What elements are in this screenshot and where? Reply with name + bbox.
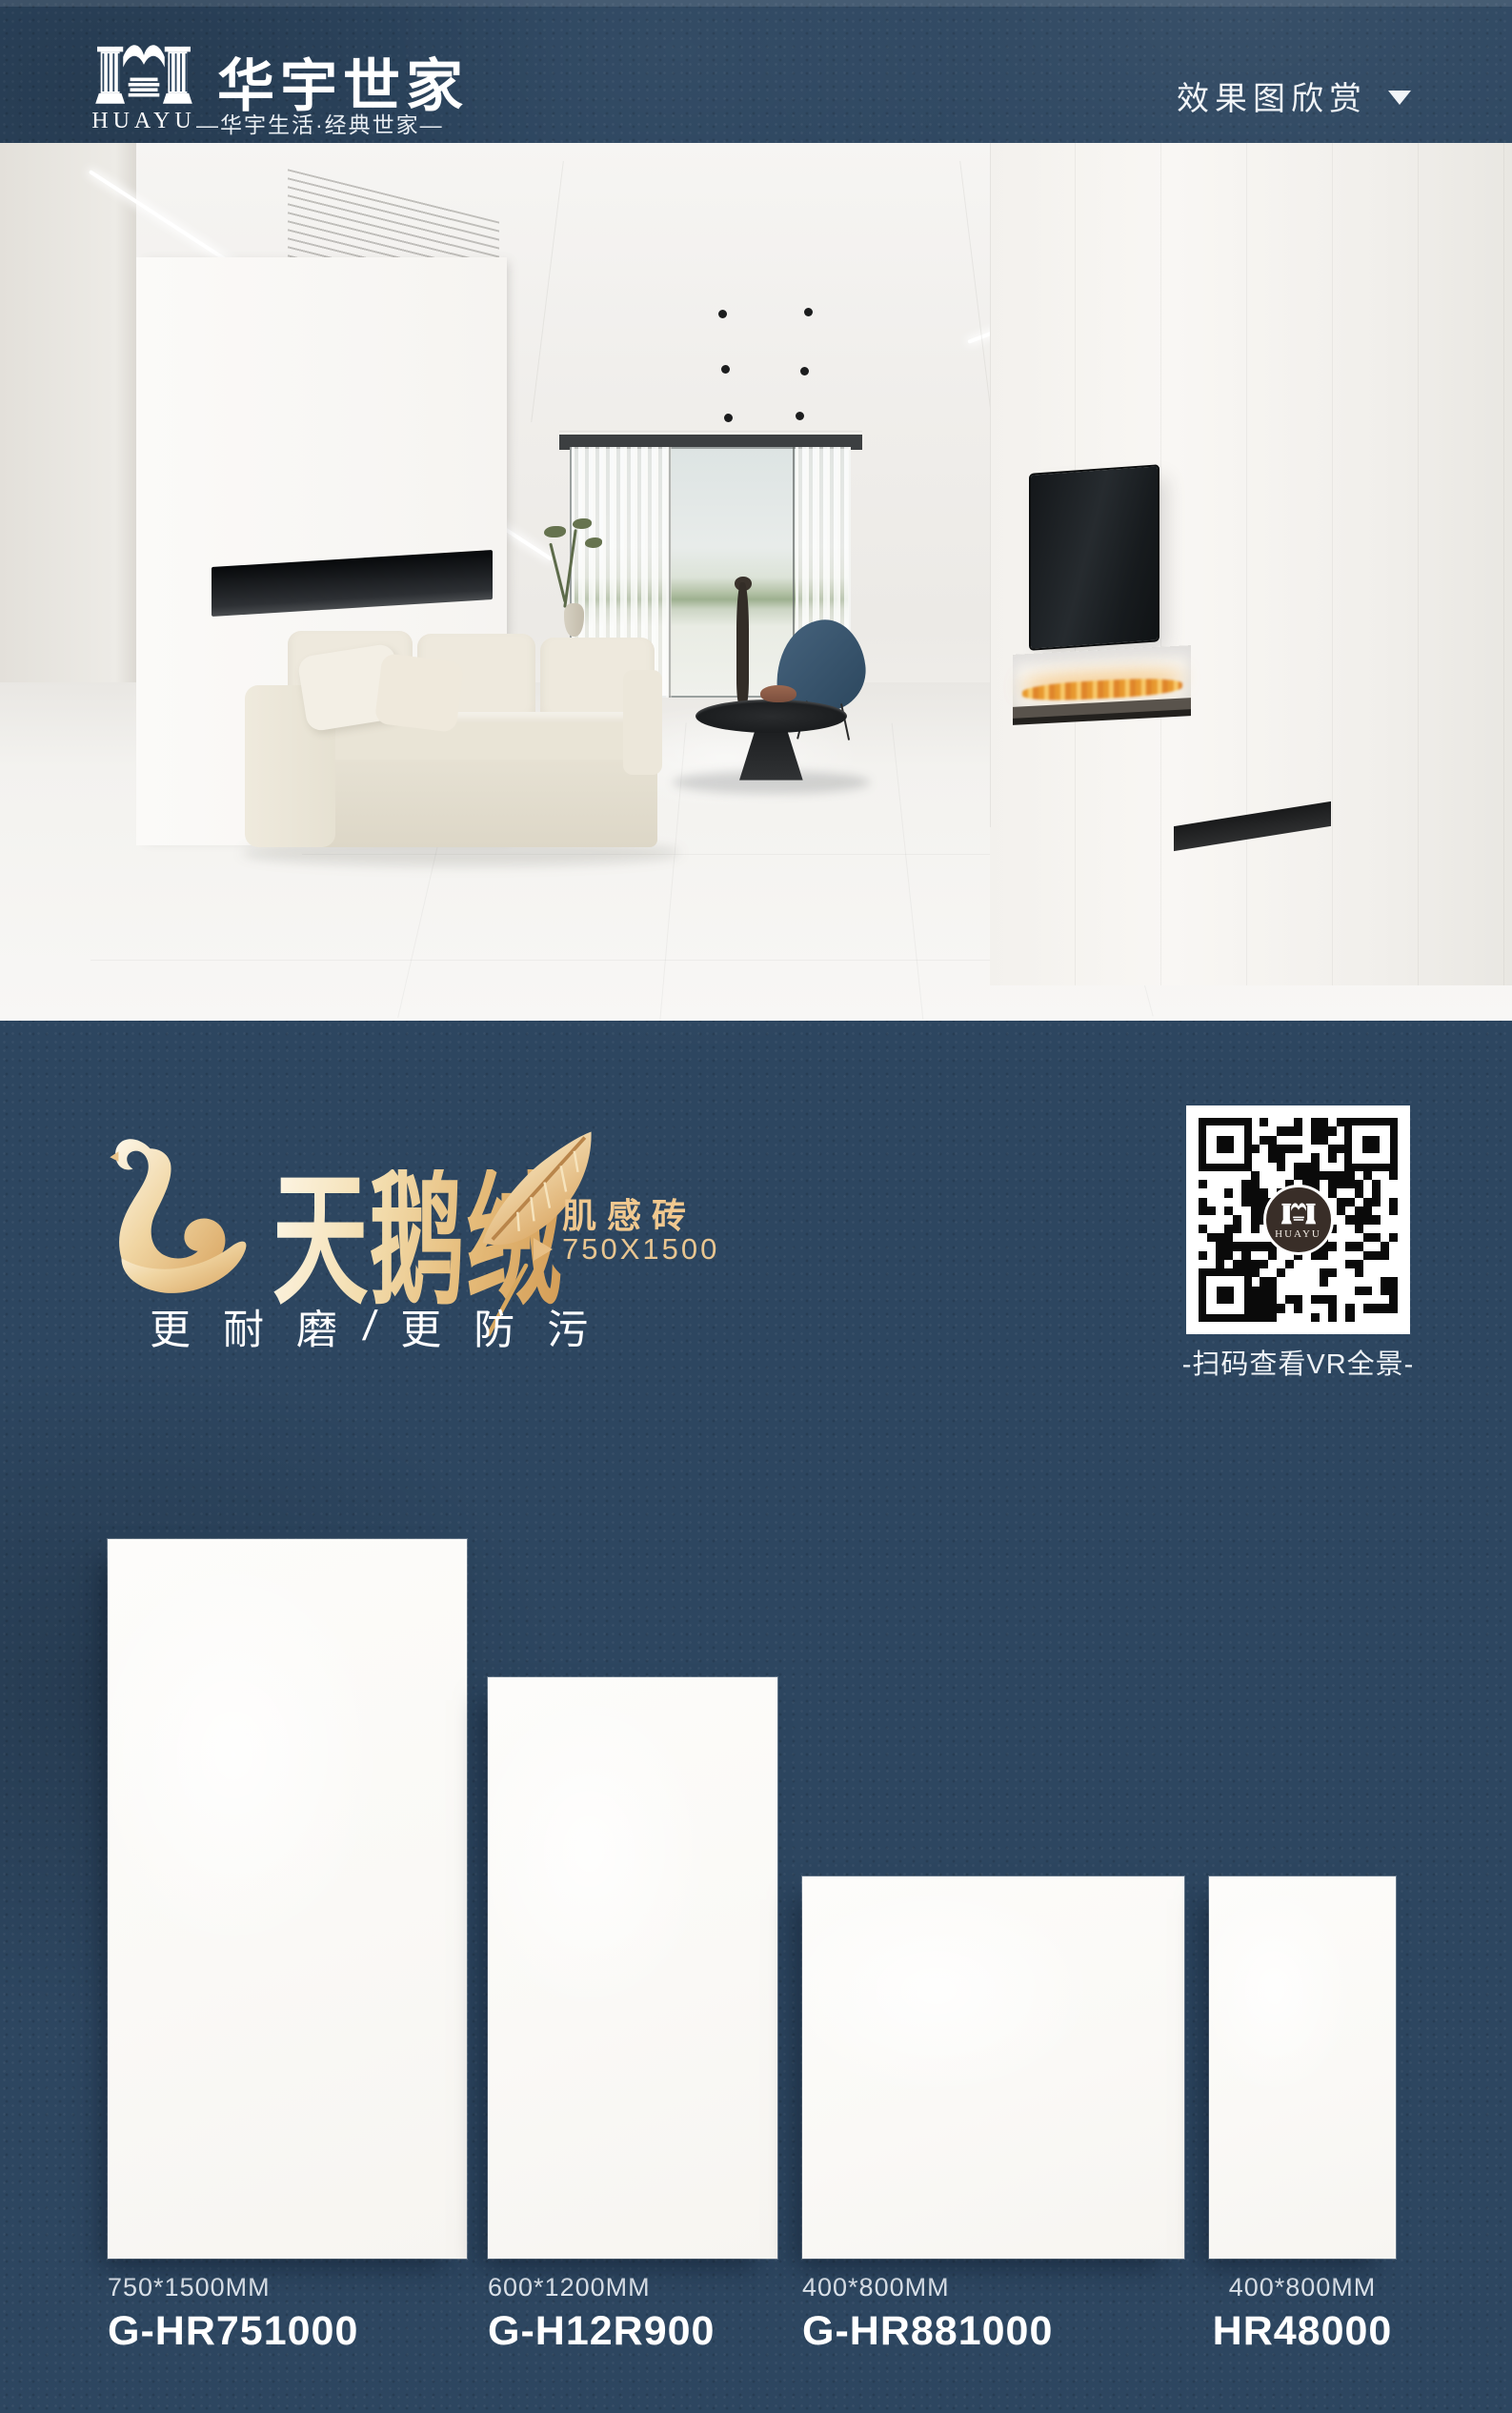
qr-cell — [1260, 1277, 1268, 1286]
plant-branch — [549, 543, 567, 603]
tile-swatch — [802, 1876, 1184, 2259]
qr-cell — [1294, 1277, 1302, 1286]
qr-cell — [1224, 1251, 1233, 1260]
size-tag-row: 750X1500 — [534, 1232, 719, 1267]
qr-cell — [1311, 1145, 1320, 1153]
qr-cell — [1355, 1180, 1363, 1188]
qr-cell — [1260, 1126, 1268, 1135]
qr-cell — [1320, 1260, 1328, 1268]
qr-cell — [1320, 1277, 1328, 1286]
qr-cell — [1363, 1180, 1372, 1188]
qr-finder — [1199, 1268, 1252, 1322]
qr-cell — [1337, 1277, 1345, 1286]
qr-cell — [1260, 1295, 1268, 1304]
qr-cell — [1328, 1295, 1337, 1304]
qr-cell — [1268, 1153, 1277, 1162]
qr-cell — [1285, 1163, 1294, 1171]
qr-cell — [1268, 1171, 1277, 1180]
qr-cell — [1311, 1153, 1320, 1162]
qr-cell — [1345, 1242, 1354, 1250]
qr-cell — [1260, 1118, 1268, 1126]
qr-cell — [1381, 1233, 1389, 1242]
qr-cell — [1216, 1171, 1224, 1180]
product-model: G-HR881000 — [802, 2308, 1184, 2355]
qr-cell — [1294, 1260, 1302, 1268]
qr-cell — [1224, 1215, 1233, 1224]
qr-cell — [1355, 1198, 1363, 1206]
qr-cell — [1277, 1118, 1285, 1126]
qr-cell — [1363, 1268, 1372, 1277]
qr-cell — [1389, 1251, 1398, 1260]
qr-cell — [1277, 1136, 1285, 1145]
qr-cell — [1381, 1206, 1389, 1215]
qr-cell — [1337, 1215, 1345, 1224]
qr-cell — [1328, 1313, 1337, 1322]
qr-cell — [1199, 1225, 1207, 1233]
qr-cell — [1199, 1180, 1207, 1188]
qr-cell — [1311, 1260, 1320, 1268]
qr-cell — [1372, 1242, 1381, 1250]
qr-cell — [1363, 1260, 1372, 1268]
qr-cell — [1320, 1251, 1328, 1260]
qr-cell — [1277, 1268, 1285, 1277]
qr-cell — [1389, 1188, 1398, 1197]
slogan-left: 更耐磨 — [150, 1297, 370, 1356]
qr-cell — [1328, 1163, 1337, 1171]
qr-cell — [1233, 1233, 1241, 1242]
qr-cell — [1241, 1233, 1250, 1242]
qr-cell — [1389, 1268, 1398, 1277]
qr-cell — [1355, 1304, 1363, 1312]
qr-cell — [1294, 1153, 1302, 1162]
product-model: HR48000 — [1209, 2308, 1396, 2355]
ceiling-edge — [559, 431, 861, 432]
qr-cell — [1216, 1260, 1224, 1268]
qr-cell — [1277, 1153, 1285, 1162]
qr-cell — [1320, 1313, 1328, 1322]
qr-cell — [1389, 1180, 1398, 1188]
ceiling-edge — [532, 161, 565, 422]
qr-cell — [1233, 1225, 1241, 1233]
qr-cell — [1251, 1188, 1260, 1197]
brand-tagline: —华宇生活·经典世家— — [196, 107, 444, 139]
qr-cell — [1199, 1260, 1207, 1268]
qr-cell — [1363, 1295, 1372, 1304]
qr-cell — [1294, 1163, 1302, 1171]
qr-cell — [1207, 1188, 1216, 1197]
qr-cell — [1345, 1171, 1354, 1180]
qr-cell — [1372, 1268, 1381, 1277]
qr-cell — [1328, 1277, 1337, 1286]
qr-cell — [1268, 1136, 1277, 1145]
qr-cell — [1345, 1304, 1354, 1312]
qr-cell — [1285, 1268, 1294, 1277]
qr-cell — [1294, 1304, 1302, 1312]
qr-cell — [1251, 1260, 1260, 1268]
qr-cell — [1241, 1251, 1250, 1260]
qr-cell — [1345, 1225, 1354, 1233]
qr-cell — [1199, 1251, 1207, 1260]
qr-cell — [1363, 1206, 1372, 1215]
qr-cell — [1216, 1242, 1224, 1250]
qr-cell — [1207, 1215, 1216, 1224]
qr-cell — [1328, 1260, 1337, 1268]
qr-cell — [1268, 1287, 1277, 1295]
qr-cell — [1260, 1242, 1268, 1250]
qr-cell — [1372, 1295, 1381, 1304]
qr-cell — [1345, 1251, 1354, 1260]
qr-cell — [1328, 1188, 1337, 1197]
slogan: 更耐磨 / 更防污 — [150, 1297, 620, 1356]
qr-cell — [1268, 1251, 1277, 1260]
plant-leaves — [544, 526, 565, 538]
qr-cell — [1294, 1118, 1302, 1126]
qr-cell — [1302, 1295, 1311, 1304]
qr-cell — [1363, 1242, 1372, 1250]
poster-page: { "header": { "brand_cn": "华宇世家", "brand… — [0, 0, 1512, 2413]
renderings-dropdown-label: 效果图欣赏 — [1177, 72, 1367, 119]
qr-cell — [1389, 1287, 1398, 1295]
header-top-divider — [0, 0, 1512, 7]
huayu-pillars-logo-icon — [91, 36, 197, 111]
qr-cell — [1337, 1260, 1345, 1268]
qr-cell — [1207, 1242, 1216, 1250]
qr-cell — [1233, 1215, 1241, 1224]
qr-cell — [1320, 1126, 1328, 1135]
qr-cell — [1285, 1304, 1294, 1312]
qr-cell — [1328, 1118, 1337, 1126]
product-model: G-HR751000 — [108, 2308, 467, 2355]
qr-cell — [1302, 1136, 1311, 1145]
qr-cell — [1381, 1242, 1389, 1250]
qr-cell — [1389, 1225, 1398, 1233]
qr-cell — [1337, 1198, 1345, 1206]
coffee-table — [696, 700, 847, 733]
qr-cell — [1328, 1136, 1337, 1145]
qr-cell — [1260, 1287, 1268, 1295]
product-size: 400*800MM — [1209, 2273, 1396, 2302]
throw-pillow — [374, 653, 464, 733]
triangle-right-icon — [534, 1238, 553, 1261]
qr-cell — [1251, 1225, 1260, 1233]
tile-swatch — [488, 1677, 777, 2259]
qr-cell — [1260, 1171, 1268, 1180]
decor-bowl — [760, 685, 796, 701]
qr-cell — [1381, 1260, 1389, 1268]
qr-cell — [1294, 1295, 1302, 1304]
qr-cell — [1355, 1206, 1363, 1215]
product-card: 750*1500MM G-HR751000 — [108, 1539, 467, 2355]
qr-cell — [1224, 1225, 1233, 1233]
qr-cell — [1199, 1171, 1207, 1180]
qr-cell — [1233, 1180, 1241, 1188]
qr-cell — [1224, 1171, 1233, 1180]
qr-cell — [1372, 1277, 1381, 1286]
qr-cell — [1302, 1153, 1311, 1162]
qr-cell — [1311, 1268, 1320, 1277]
qr-cell — [1363, 1215, 1372, 1224]
qr-cell — [1328, 1251, 1337, 1260]
qr-cell — [1268, 1180, 1277, 1188]
qr-cell — [1389, 1304, 1398, 1312]
qr-cell — [1233, 1251, 1241, 1260]
qr-cell — [1224, 1180, 1233, 1188]
qr-cell — [1233, 1242, 1241, 1250]
qr-cell — [1207, 1171, 1216, 1180]
qr-cell — [1241, 1215, 1250, 1224]
qr-cell — [1241, 1188, 1250, 1197]
qr-cell — [1389, 1277, 1398, 1286]
qr-cell — [1355, 1242, 1363, 1250]
qr-cell — [1355, 1251, 1363, 1260]
qr-cell — [1372, 1188, 1381, 1197]
qr-cell — [1345, 1295, 1354, 1304]
qr-cell — [1302, 1313, 1311, 1322]
qr-cell — [1260, 1268, 1268, 1277]
qr-cell — [1268, 1260, 1277, 1268]
qr-cell — [1224, 1198, 1233, 1206]
qr-cell — [1285, 1287, 1294, 1295]
qr-cell — [1277, 1163, 1285, 1171]
qr-cell — [1216, 1225, 1224, 1233]
qr-center-logo: HUAYU — [1263, 1185, 1334, 1255]
qr-cell — [1363, 1277, 1372, 1286]
product-size: 750*1500MM — [108, 2273, 467, 2302]
qr-cell — [1302, 1268, 1311, 1277]
qr-cell — [1328, 1242, 1337, 1250]
qr-cell — [1311, 1287, 1320, 1295]
tile-swatch — [1209, 1876, 1396, 2259]
qr-cell — [1320, 1153, 1328, 1162]
qr-cell — [1311, 1163, 1320, 1171]
qr-cell — [1372, 1313, 1381, 1322]
qr-cell — [1389, 1295, 1398, 1304]
qr-cell — [1345, 1188, 1354, 1197]
ceiling-spotlight — [804, 308, 813, 316]
qr-cell — [1355, 1215, 1363, 1224]
qr-cell — [1268, 1313, 1277, 1322]
qr-cell — [1260, 1145, 1268, 1153]
product-model: G-H12R900 — [488, 2308, 777, 2355]
qr-cell — [1381, 1180, 1389, 1188]
qr-cell — [1345, 1268, 1354, 1277]
qr-cell — [1251, 1242, 1260, 1250]
ceiling-spotlight — [718, 310, 727, 318]
qr-cell — [1345, 1260, 1354, 1268]
ceiling-spotlight — [796, 412, 804, 420]
vase — [564, 603, 584, 637]
qr-cell — [1199, 1233, 1207, 1242]
qr-cell — [1199, 1198, 1207, 1206]
qr-cell — [1311, 1126, 1320, 1135]
qr-cell — [1285, 1171, 1294, 1180]
qr-cell — [1251, 1251, 1260, 1260]
qr-cell — [1233, 1206, 1241, 1215]
qr-cell — [1320, 1163, 1328, 1171]
qr-cell — [1241, 1180, 1250, 1188]
qr-cell — [1302, 1304, 1311, 1312]
qr-cell — [1363, 1304, 1372, 1312]
qr-cell — [1345, 1233, 1354, 1242]
qr-cell — [1381, 1171, 1389, 1180]
qr-cell — [1320, 1180, 1328, 1188]
qr-cell — [1294, 1136, 1302, 1145]
qr-cell — [1233, 1188, 1241, 1197]
qr-cell — [1372, 1206, 1381, 1215]
qr-cell — [1328, 1171, 1337, 1180]
qr-cell — [1251, 1206, 1260, 1215]
sofa-armrest — [623, 670, 662, 776]
qr-cell — [1216, 1206, 1224, 1215]
qr-cell — [1285, 1313, 1294, 1322]
qr-cell — [1199, 1242, 1207, 1250]
brand-en: HUAYU — [91, 109, 197, 134]
qr-cell — [1207, 1251, 1216, 1260]
product-size: 400*800MM — [802, 2273, 1184, 2302]
qr-cell — [1355, 1260, 1363, 1268]
qr-cell — [1328, 1304, 1337, 1312]
qr-cell — [1260, 1313, 1268, 1322]
renderings-dropdown[interactable]: 效果图欣赏 — [1177, 72, 1411, 119]
qr-cell — [1268, 1277, 1277, 1286]
qr-cell — [1311, 1277, 1320, 1286]
qr-cell — [1302, 1277, 1311, 1286]
qr-cell — [1241, 1225, 1250, 1233]
qr-cell — [1251, 1198, 1260, 1206]
qr-cell — [1241, 1198, 1250, 1206]
ceiling-edge — [959, 161, 993, 422]
qr-cell — [1337, 1180, 1345, 1188]
qr-cell — [1337, 1295, 1345, 1304]
qr-cell — [1277, 1277, 1285, 1286]
qr-cell — [1328, 1180, 1337, 1188]
qr-cell — [1268, 1268, 1277, 1277]
qr-cell — [1241, 1206, 1250, 1215]
qr-cell — [1302, 1126, 1311, 1135]
qr-cell — [1207, 1225, 1216, 1233]
qr-cell — [1260, 1260, 1268, 1268]
qr-cell — [1224, 1233, 1233, 1242]
qr-cell — [1320, 1304, 1328, 1312]
qr-cell — [1389, 1233, 1398, 1242]
qr-caption: -扫码查看VR全景- — [1167, 1342, 1429, 1382]
qr-cell — [1328, 1145, 1337, 1153]
qr-cell — [1372, 1180, 1381, 1188]
qr-cell — [1320, 1136, 1328, 1145]
qr-cell — [1277, 1171, 1285, 1180]
size-tag: 750X1500 — [562, 1232, 719, 1267]
qr-cell — [1337, 1188, 1345, 1197]
qr-cell — [1311, 1313, 1320, 1322]
qr-cell — [1345, 1198, 1354, 1206]
qr-cell — [1372, 1198, 1381, 1206]
qr-cell — [1381, 1304, 1389, 1312]
qr-cell — [1233, 1171, 1241, 1180]
qr-cell — [1207, 1233, 1216, 1242]
qr-cell — [1285, 1153, 1294, 1162]
qr-cell — [1277, 1145, 1285, 1153]
qr-cell — [1345, 1206, 1354, 1215]
qr-cell — [1311, 1171, 1320, 1180]
qr-cell — [1302, 1260, 1311, 1268]
qr-cell — [1302, 1145, 1311, 1153]
qr-cell — [1285, 1145, 1294, 1153]
qr-cell — [1268, 1304, 1277, 1312]
qr-cell — [1372, 1233, 1381, 1242]
qr-cell — [1320, 1287, 1328, 1295]
qr-cell — [1251, 1233, 1260, 1242]
qr-cell — [1216, 1251, 1224, 1260]
qr-cell — [1363, 1251, 1372, 1260]
qr-cell — [1345, 1287, 1354, 1295]
qr-cell — [1294, 1145, 1302, 1153]
qr-cell — [1345, 1277, 1354, 1286]
plant-leaves — [585, 537, 601, 547]
promo-section: 天鹅绒 肌感砖 750X1500 更耐磨 / 更防污 — [0, 1021, 1512, 2413]
qr-cell — [1328, 1126, 1337, 1135]
qr-cell — [1355, 1287, 1363, 1295]
qr-cell — [1372, 1251, 1381, 1260]
qr-cell — [1207, 1180, 1216, 1188]
qr-cell — [1328, 1268, 1337, 1277]
qr-cell — [1320, 1268, 1328, 1277]
qr-cell — [1337, 1233, 1345, 1242]
qr-cell — [1285, 1295, 1294, 1304]
qr-cell — [1372, 1304, 1381, 1312]
qr-cell — [1285, 1136, 1294, 1145]
qr-cell — [1389, 1206, 1398, 1215]
qr-cell — [1285, 1126, 1294, 1135]
qr-logo-text: HUAYU — [1275, 1228, 1321, 1240]
qr-cell — [1337, 1171, 1345, 1180]
qr-cell — [1224, 1188, 1233, 1197]
qr-cell — [1302, 1118, 1311, 1126]
qr-cell — [1260, 1153, 1268, 1162]
qr-finder — [1344, 1118, 1398, 1171]
qr-cell — [1294, 1171, 1302, 1180]
wall-corner — [990, 143, 991, 827]
qr-cell — [1277, 1260, 1285, 1268]
qr-cell — [1320, 1171, 1328, 1180]
qr-cell — [1328, 1287, 1337, 1295]
qr-cell — [1216, 1198, 1224, 1206]
qr-cell — [1381, 1215, 1389, 1224]
qr-cell — [1381, 1268, 1389, 1277]
qr-cell — [1337, 1242, 1345, 1250]
qr-cell — [1216, 1188, 1224, 1197]
qr-cell — [1268, 1118, 1277, 1126]
qr-cell — [1372, 1287, 1381, 1295]
qr-cell — [1355, 1277, 1363, 1286]
slogan-right: 更防污 — [400, 1297, 620, 1356]
qr-cell — [1372, 1171, 1381, 1180]
qr-cell — [1285, 1277, 1294, 1286]
qr-cell — [1251, 1171, 1260, 1180]
qr-cell — [1199, 1188, 1207, 1197]
qr-cell — [1337, 1304, 1345, 1312]
qr-cell — [1337, 1225, 1345, 1233]
qr-cell — [1241, 1260, 1250, 1268]
chevron-down-icon — [1388, 91, 1411, 105]
qr-cell — [1285, 1260, 1294, 1268]
vr-qr-code[interactable]: HUAYU — [1186, 1105, 1410, 1334]
qr-cell — [1381, 1277, 1389, 1286]
qr-cell — [1372, 1260, 1381, 1268]
sculpture — [736, 582, 749, 703]
qr-finder — [1199, 1118, 1252, 1171]
ceiling-spotlight — [721, 365, 730, 374]
qr-cell — [1363, 1287, 1372, 1295]
